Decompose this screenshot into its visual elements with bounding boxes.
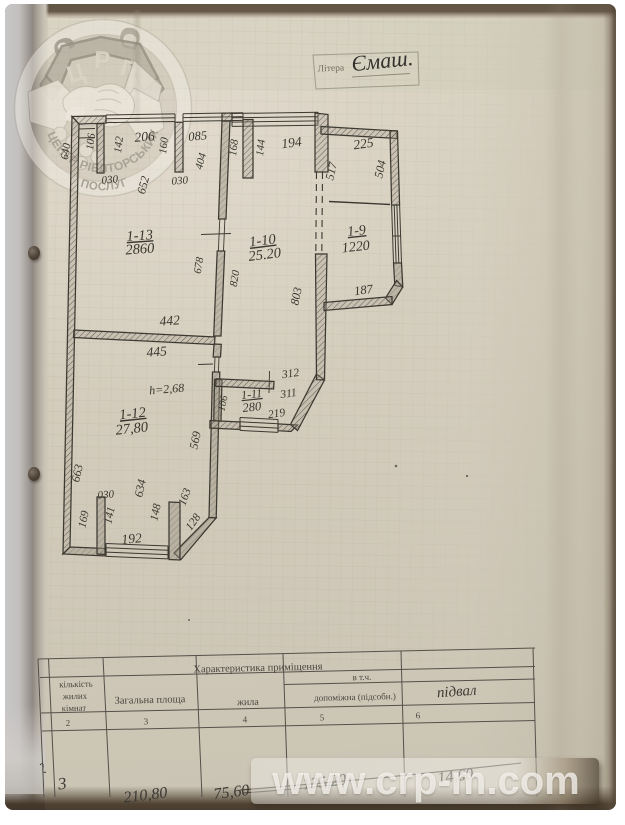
svg-text:194: 194 <box>280 134 302 151</box>
svg-text:6: 6 <box>416 710 421 720</box>
svg-text:030: 030 <box>171 174 189 187</box>
svg-text:3: 3 <box>56 774 68 794</box>
svg-text:142: 142 <box>112 135 126 153</box>
svg-text:634: 634 <box>131 478 148 499</box>
svg-text:663: 663 <box>68 463 85 484</box>
svg-text:219: 219 <box>267 407 286 421</box>
svg-text:25.20: 25.20 <box>248 245 283 265</box>
svg-text:404: 404 <box>193 151 209 171</box>
svg-text:210,80: 210,80 <box>123 784 169 806</box>
svg-text:5: 5 <box>320 712 325 722</box>
svg-text:206: 206 <box>134 128 156 145</box>
svg-text:820: 820 <box>228 269 243 288</box>
svg-text:442: 442 <box>159 312 180 328</box>
svg-text:допоміжна (підсобн.): допоміжна (підсобн.) <box>314 691 396 703</box>
svg-text:75,60: 75,60 <box>213 782 251 803</box>
svg-text:169: 169 <box>76 509 91 529</box>
svg-text:168: 168 <box>227 138 241 156</box>
svg-text:569: 569 <box>186 430 203 451</box>
svg-text:кількість: кількість <box>59 679 93 690</box>
svg-text:жила: жила <box>236 697 259 709</box>
svg-text:311: 311 <box>279 387 298 401</box>
svg-text:030: 030 <box>97 488 115 501</box>
svg-text:192: 192 <box>121 530 143 547</box>
svg-text:підвал: підвал <box>436 683 477 702</box>
svg-text:1-9: 1-9 <box>347 223 367 240</box>
svg-text:148: 148 <box>148 502 163 522</box>
svg-text:280: 280 <box>242 399 263 415</box>
svg-text:160: 160 <box>157 136 171 154</box>
svg-text:803: 803 <box>287 286 304 307</box>
svg-text:504: 504 <box>371 159 389 180</box>
svg-text:144: 144 <box>254 138 268 156</box>
svg-text:2860: 2860 <box>125 240 156 258</box>
svg-text:678: 678 <box>192 256 207 275</box>
svg-text:27,80: 27,80 <box>115 419 150 438</box>
svg-text:h=2,68: h=2,68 <box>149 381 185 398</box>
svg-text:163: 163 <box>177 487 194 508</box>
svg-text:4: 4 <box>243 714 248 724</box>
svg-text:кімнат: кімнат <box>62 703 87 714</box>
svg-text:106: 106 <box>84 132 98 150</box>
svg-text:Р: Р <box>94 47 111 75</box>
svg-text:225: 225 <box>352 135 374 153</box>
svg-text:Характеристика приміщення: Характеристика приміщення <box>193 662 323 676</box>
svg-text:445: 445 <box>146 343 167 359</box>
svg-text:106: 106 <box>217 394 231 412</box>
svg-text:жилих: жилих <box>62 691 88 702</box>
svg-text:Загальна площа: Загальна площа <box>114 694 185 707</box>
svg-text:в т.ч.: в т.ч. <box>352 672 371 682</box>
svg-text:030: 030 <box>101 173 119 186</box>
svg-text:2: 2 <box>66 718 71 728</box>
svg-text:3: 3 <box>144 716 149 726</box>
svg-text:141: 141 <box>102 506 117 525</box>
svg-text:312: 312 <box>280 367 300 381</box>
svg-text:517: 517 <box>322 160 340 182</box>
svg-text:187: 187 <box>353 282 374 299</box>
svg-text:Ємаш.: Ємаш. <box>350 45 414 76</box>
svg-text:Літера: Літера <box>318 64 346 75</box>
svg-text:1220: 1220 <box>341 239 370 257</box>
svg-text:085: 085 <box>188 128 208 144</box>
